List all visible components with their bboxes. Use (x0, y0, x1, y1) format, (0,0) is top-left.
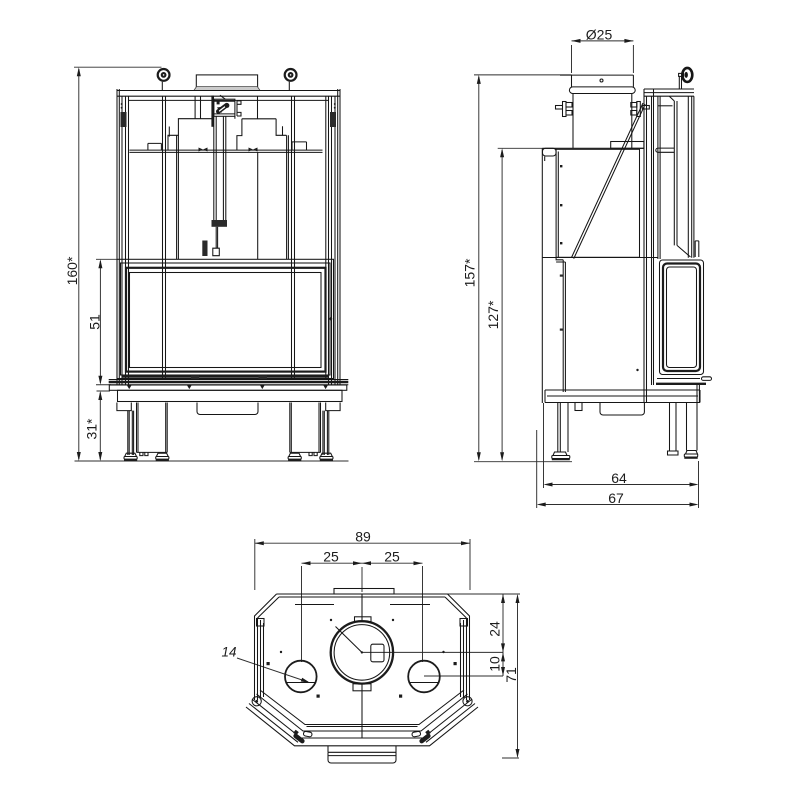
svg-text:14: 14 (221, 645, 236, 660)
svg-text:157*: 157* (462, 258, 478, 287)
svg-text:71: 71 (503, 667, 519, 683)
svg-text:25: 25 (384, 549, 400, 565)
svg-text:Ø25: Ø25 (586, 27, 613, 43)
svg-text:160*: 160* (64, 256, 80, 285)
svg-text:127*: 127* (485, 300, 501, 329)
svg-text:31*: 31* (84, 418, 100, 440)
svg-text:51: 51 (87, 314, 103, 330)
svg-text:67: 67 (608, 490, 624, 506)
svg-text:25: 25 (323, 549, 339, 565)
svg-text:10: 10 (487, 656, 503, 672)
svg-text:89: 89 (355, 529, 371, 545)
svg-text:24: 24 (487, 621, 503, 637)
svg-text:64: 64 (611, 470, 627, 486)
